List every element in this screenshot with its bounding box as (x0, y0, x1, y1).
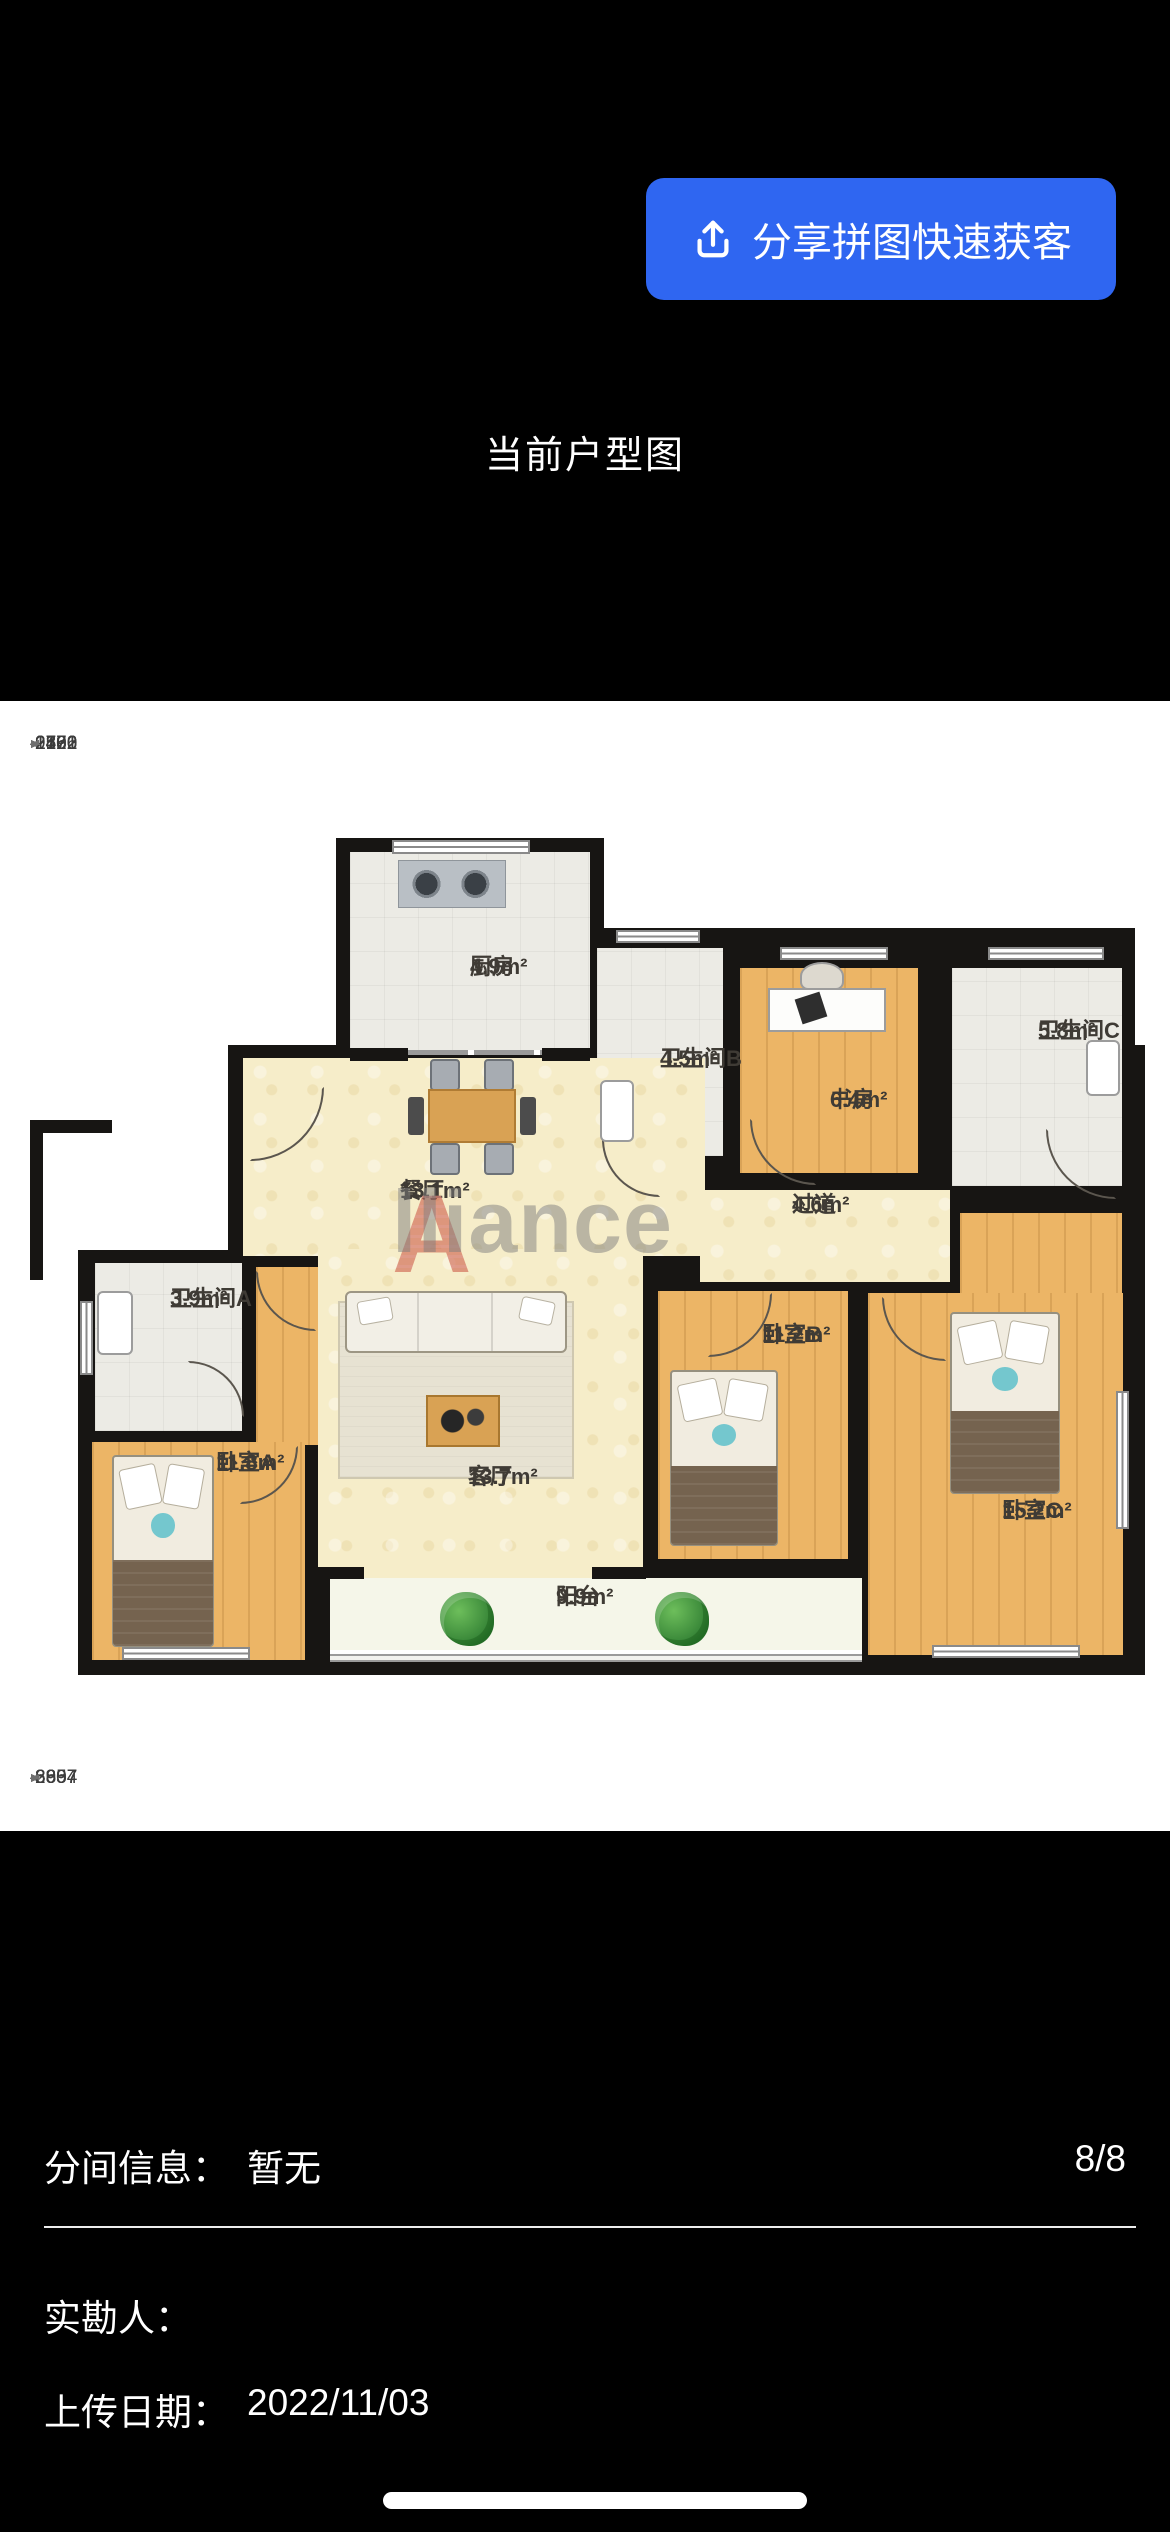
bed-c (950, 1312, 1060, 1494)
surveyor-label: 实勘人： (44, 2288, 192, 2342)
spacer (229, 2382, 247, 2436)
dimension-line (30, 1778, 40, 1779)
room-area: 5.8m² (1038, 1017, 1095, 1046)
room-area: 3.9m² (170, 1285, 227, 1314)
bathroom-c-window (988, 947, 1104, 960)
bathroom-a-window (80, 1301, 93, 1375)
study-desk (768, 988, 886, 1032)
upload-date-label: 上传日期： (44, 2382, 229, 2436)
partition-info-value: 暂无 (247, 2138, 321, 2192)
floor-plan-image[interactable]: 979140221302576176128222161 863290768573… (0, 701, 1170, 1831)
dining-table (428, 1089, 516, 1143)
kitchen-opening-stub (542, 1048, 590, 1061)
dimension-line (30, 744, 40, 745)
bed-pillow (957, 1319, 1005, 1366)
section-divider (44, 2226, 1136, 2228)
dimension-value: 3394 (35, 1767, 77, 1789)
bed-blanket (951, 1411, 1059, 1493)
room-area: 4.6m² (792, 1191, 849, 1220)
share-button-label: 分享拼图快速获客 (752, 210, 1072, 268)
spacer (229, 2138, 247, 2192)
room-area: 4.9m² (470, 953, 527, 982)
balcony-opening-stub (318, 1567, 364, 1579)
top-dimension-row: 979140221302576176128222161 (30, 725, 1135, 763)
room-area: 4.5m² (660, 1045, 717, 1074)
kitchen-window (392, 840, 530, 854)
bed-a (112, 1455, 214, 1647)
bedroom-a-window (122, 1647, 250, 1660)
partition-info-row: 分间信息： 暂无 8/8 (44, 2138, 1126, 2192)
dining-side-seat (520, 1097, 536, 1135)
room-area: 9.9m² (556, 1583, 613, 1612)
balcony-railing (330, 1650, 862, 1662)
study-chair (800, 962, 844, 990)
share-upload-icon (690, 216, 736, 262)
room-area: 13.7m² (468, 1463, 538, 1492)
bed-accent-pillow (712, 1424, 737, 1446)
room-area: 6.4m² (830, 1086, 887, 1115)
bedroom-c-window (932, 1645, 1080, 1658)
home-indicator-bar[interactable] (383, 2492, 807, 2509)
partition-info-label: 分间信息： (44, 2138, 229, 2192)
plant-icon (440, 1592, 494, 1646)
balcony-opening-stub (592, 1567, 646, 1579)
bottom-dimension-row: 863290768573394 (30, 1759, 1135, 1797)
surveyor-row: 实勘人： (44, 2288, 1126, 2342)
plant-icon (655, 1592, 709, 1646)
bathroom-b-window (616, 930, 700, 943)
kitchen-opening-stub (350, 1048, 408, 1061)
study-window (780, 947, 888, 960)
upload-date-row: 上传日期： 2022/11/03 (44, 2382, 1126, 2436)
bed-pillow (723, 1377, 768, 1421)
entry-landing-wall (30, 1120, 43, 1280)
bed-b (670, 1370, 778, 1546)
bed-pillow (118, 1463, 163, 1511)
bed-accent-pillow (151, 1513, 175, 1537)
dining-chair (484, 1059, 514, 1091)
bedroom-c-side-window (1116, 1391, 1129, 1529)
upload-date-value: 2022/11/03 (247, 2382, 429, 2436)
bed-pillow (677, 1377, 724, 1422)
page-title: 当前户型图 (0, 424, 1170, 479)
dining-chair (430, 1059, 460, 1091)
kitchen-sliding-door (408, 1050, 542, 1055)
stove-icon (398, 860, 506, 908)
bed-blanket (671, 1466, 777, 1545)
coffee-table (426, 1395, 500, 1447)
spacer (321, 2138, 1075, 2192)
bed-accent-pillow (992, 1367, 1017, 1390)
bed-blanket (113, 1560, 213, 1646)
dimension-value: 2161 (35, 733, 77, 755)
room-area: 11.8m² (216, 1449, 285, 1478)
page-indicator: 8/8 (1075, 2138, 1126, 2192)
watermark-text: lliance (392, 1171, 673, 1273)
bathroom-b-fixture (600, 1080, 634, 1142)
bed-pillow (1004, 1320, 1050, 1366)
bed-pillow (162, 1463, 206, 1510)
bathroom-a-washer (97, 1291, 133, 1355)
room-area: 15.2m² (1002, 1497, 1072, 1526)
bathroom-c-sink (1086, 1040, 1120, 1096)
dining-side-seat (408, 1097, 424, 1135)
share-button[interactable]: 分享拼图快速获客 (646, 178, 1116, 300)
room-area: 11.2m² (762, 1321, 831, 1350)
